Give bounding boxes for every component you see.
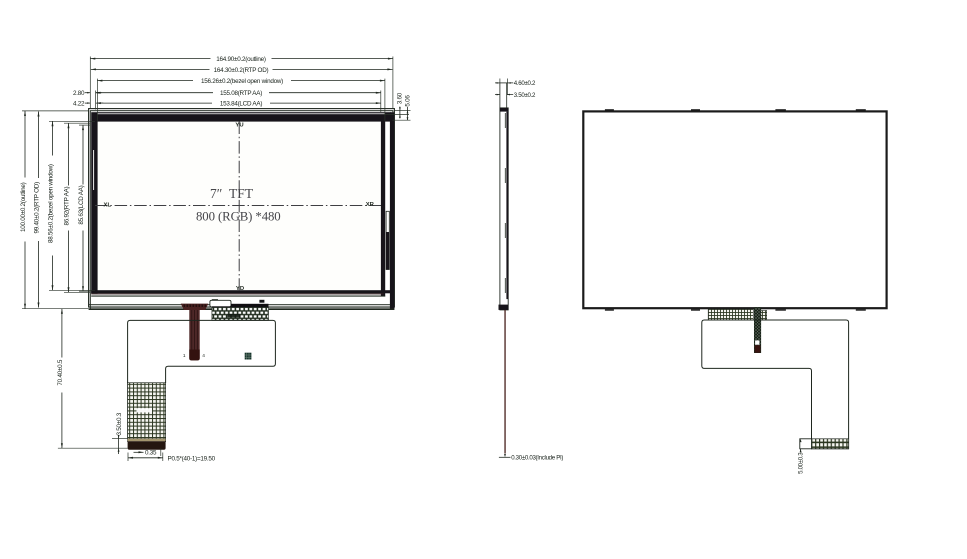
svg-text:XR: XR: [366, 202, 375, 208]
svg-text:4.60±0.2: 4.60±0.2: [514, 80, 536, 87]
svg-text:XL: XL: [104, 202, 112, 208]
svg-text:5.00±0.3: 5.00±0.3: [798, 452, 805, 474]
svg-text:4.22: 4.22: [73, 100, 85, 107]
svg-text:4: 4: [202, 353, 205, 359]
svg-text:1: 1: [183, 353, 186, 359]
svg-text:155.08(RTP AA): 155.08(RTP AA): [220, 90, 262, 97]
svg-text:800 (RGB) *480: 800 (RGB) *480: [196, 210, 281, 224]
svg-text:153.84(LCD AA): 153.84(LCD AA): [220, 100, 263, 107]
svg-text:3.50±0.3: 3.50±0.3: [116, 412, 123, 435]
svg-text:164.90±0.2(outline): 164.90±0.2(outline): [216, 56, 266, 63]
svg-text:156.26±0.2(bezel open window): 156.26±0.2(bezel open window): [201, 78, 283, 85]
svg-text:70.40±0.5: 70.40±0.5: [57, 359, 64, 385]
svg-text:85.63(LCD AA): 85.63(LCD AA): [78, 185, 85, 224]
svg-text:7″ TFT: 7″ TFT: [210, 186, 254, 201]
svg-text:0.30±0.03(Include PI): 0.30±0.03(Include PI): [511, 454, 563, 461]
svg-text:164.30±0.2(RTP OD): 164.30±0.2(RTP OD): [214, 67, 269, 74]
svg-text:99.40±0.2(RTP OD): 99.40±0.2(RTP OD): [34, 182, 41, 234]
svg-text:P0.5*(40-1)=19.50: P0.5*(40-1)=19.50: [168, 455, 216, 462]
svg-text:5.06: 5.06: [404, 95, 411, 107]
svg-text:86.92(RTP AA): 86.92(RTP AA): [64, 187, 71, 226]
svg-text:2.80: 2.80: [73, 90, 85, 97]
svg-text:3.50±0.2: 3.50±0.2: [514, 92, 536, 99]
svg-text:100.00±0.2(outline): 100.00±0.2(outline): [20, 182, 27, 232]
svg-text:3.60: 3.60: [397, 92, 404, 104]
svg-text:YD: YD: [236, 286, 244, 292]
svg-text:YU: YU: [235, 123, 243, 129]
svg-text:88.56±0.2(bezel open window): 88.56±0.2(bezel open window): [48, 164, 55, 243]
svg-text:0.35: 0.35: [145, 450, 157, 457]
